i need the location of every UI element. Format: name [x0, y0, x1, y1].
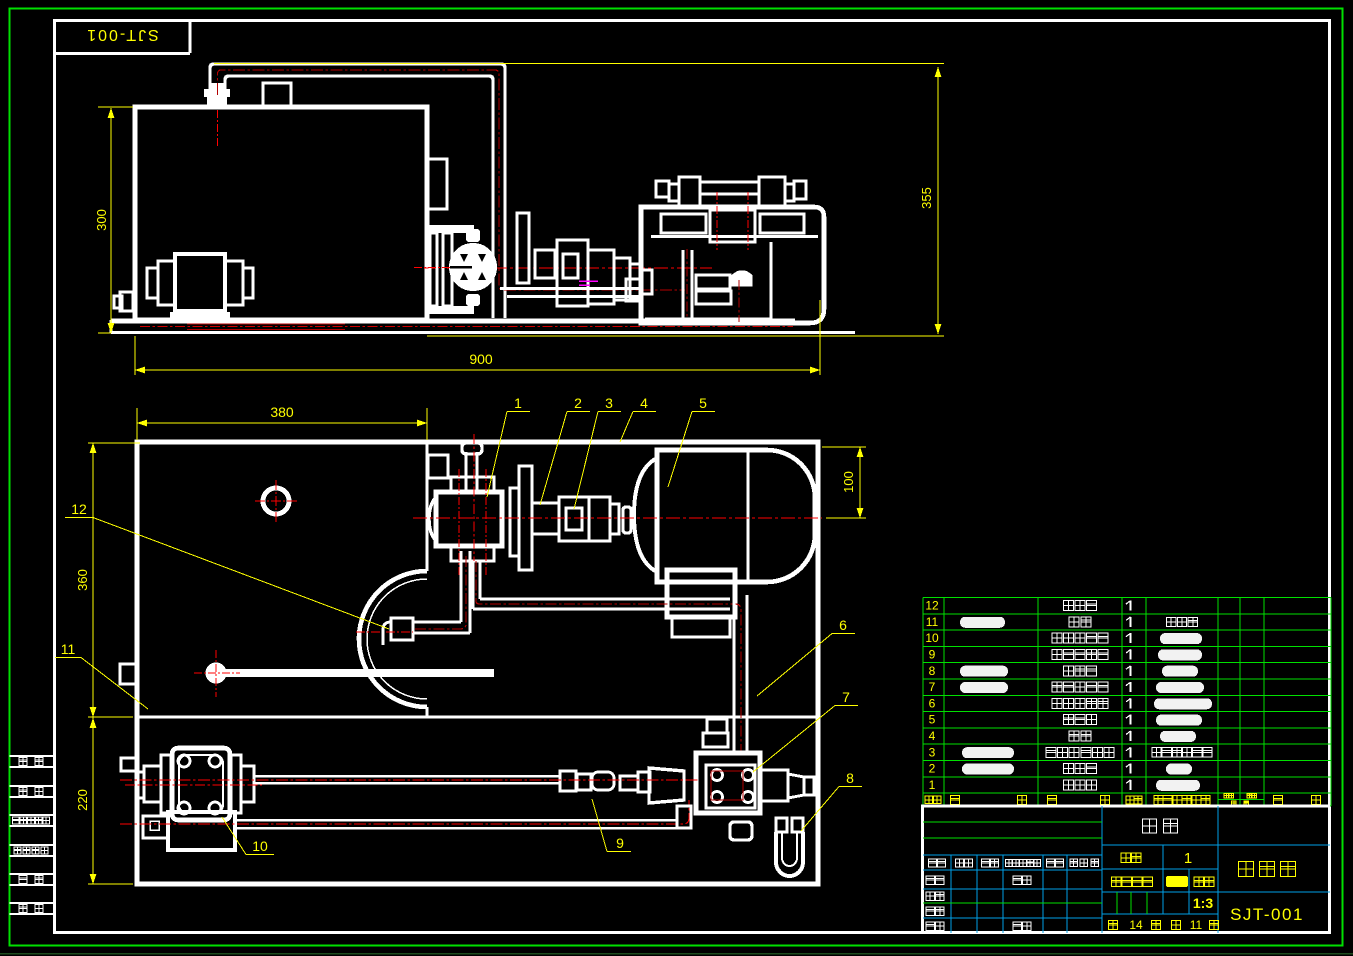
svg-text:3: 3: [605, 395, 613, 411]
svg-text:11: 11: [1190, 918, 1203, 932]
svg-text:3: 3: [929, 745, 936, 759]
svg-text:SJT-001: SJT-001: [85, 26, 159, 43]
svg-text:5: 5: [699, 395, 707, 411]
svg-text:12: 12: [925, 599, 939, 613]
svg-text:6: 6: [839, 617, 847, 633]
svg-text:355: 355: [919, 187, 934, 209]
svg-text:220: 220: [75, 789, 90, 811]
svg-text:4: 4: [929, 729, 936, 743]
svg-text:900: 900: [469, 351, 493, 367]
svg-text:380: 380: [270, 404, 294, 420]
svg-text:12: 12: [71, 501, 87, 517]
svg-text:5: 5: [929, 713, 936, 727]
svg-text:8: 8: [846, 770, 854, 786]
svg-text:9: 9: [616, 835, 624, 851]
svg-text:9: 9: [929, 648, 936, 662]
svg-text:8: 8: [929, 664, 936, 678]
svg-text:1: 1: [1184, 850, 1192, 867]
svg-text:11: 11: [926, 615, 939, 629]
svg-text:7: 7: [842, 689, 850, 705]
svg-text:2: 2: [929, 762, 936, 776]
svg-text:1: 1: [929, 778, 936, 792]
svg-text:11: 11: [61, 641, 76, 657]
svg-text:1: 1: [514, 395, 522, 411]
svg-text:7: 7: [929, 680, 936, 694]
svg-text:100: 100: [841, 471, 856, 493]
svg-text:300: 300: [94, 209, 109, 231]
svg-text:10: 10: [252, 838, 268, 854]
svg-text:2: 2: [574, 395, 582, 411]
svg-text:1:3: 1:3: [1193, 895, 1213, 911]
svg-text:SJT-001: SJT-001: [1230, 905, 1304, 924]
svg-text:6: 6: [929, 696, 936, 710]
svg-text:14: 14: [1129, 918, 1143, 932]
svg-text:360: 360: [75, 569, 90, 591]
svg-text:4: 4: [640, 395, 648, 411]
svg-text:10: 10: [925, 631, 939, 645]
